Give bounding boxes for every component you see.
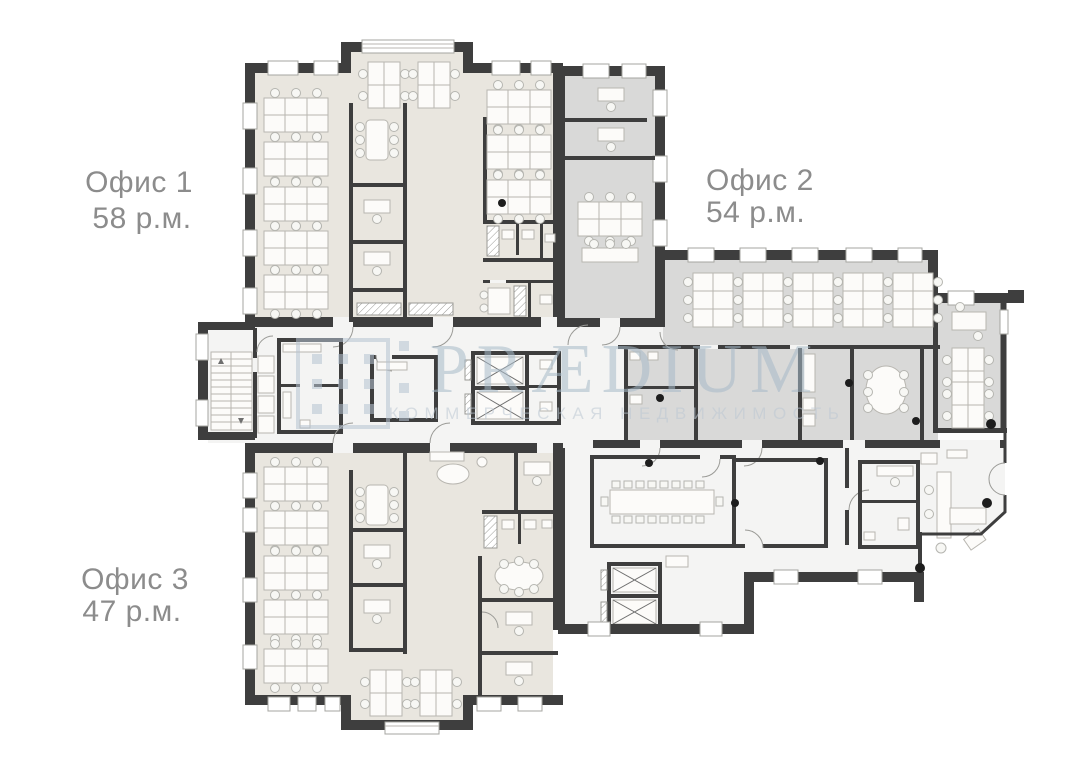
office-1-name: Офис 1 (85, 166, 193, 199)
watermark-tagline: КОММЕРЧЕСКАЯ НЕДВИЖИМОСТЬ (389, 404, 846, 423)
office-2-name: Офис 2 (706, 164, 814, 197)
stairs (211, 352, 252, 430)
office-3-name: Офис 3 (81, 563, 189, 596)
floor-plan-page: PRÆDIUM КОММЕРЧЕСКАЯ НЕДВИЖИМОСТЬ Офис 1… (0, 0, 1077, 763)
floor-plan-svg: PRÆDIUM КОММЕРЧЕСКАЯ НЕДВИЖИМОСТЬ Офис 1… (0, 0, 1077, 763)
watermark-brand: PRÆDIUM (430, 331, 821, 408)
office-2-size: 54 р.м. (706, 196, 805, 229)
office-3-size: 47 р.м. (82, 595, 181, 628)
elevators-lobby (601, 562, 662, 628)
office-1-size: 58 р.м. (92, 202, 191, 235)
